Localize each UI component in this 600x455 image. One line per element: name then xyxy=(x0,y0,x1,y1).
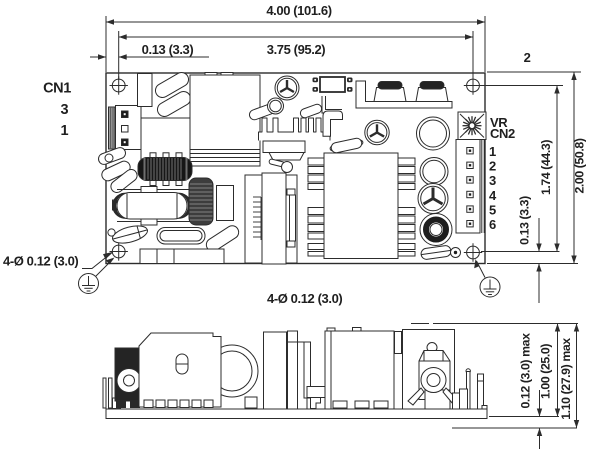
svg-text:2: 2 xyxy=(489,159,496,174)
svg-text:3.75 (95.2): 3.75 (95.2) xyxy=(267,42,326,57)
svg-text:0.13 (3.3): 0.13 (3.3) xyxy=(142,42,194,57)
svg-text:3: 3 xyxy=(489,173,496,188)
svg-text:2.00 (50.8): 2.00 (50.8) xyxy=(573,138,587,193)
svg-text:1: 1 xyxy=(489,144,496,159)
svg-text:1.10 (27.9) max: 1.10 (27.9) max xyxy=(559,338,573,420)
svg-text:6: 6 xyxy=(489,217,496,232)
svg-text:4: 4 xyxy=(489,188,497,203)
svg-text:CN1: CN1 xyxy=(43,81,71,97)
svg-text:3: 3 xyxy=(60,102,68,118)
svg-text:0.13 (3.3): 0.13 (3.3) xyxy=(518,196,532,245)
svg-text:1.00 (25.0): 1.00 (25.0) xyxy=(539,344,553,399)
svg-text:2: 2 xyxy=(524,50,531,65)
svg-text:1: 1 xyxy=(60,123,68,139)
svg-text:0.12 (3.0) max: 0.12 (3.0) max xyxy=(519,333,533,409)
svg-text:CN2: CN2 xyxy=(490,126,515,141)
svg-text:1.74 (44.3): 1.74 (44.3) xyxy=(539,140,553,195)
svg-text:4-Ø 0.12 (3.0): 4-Ø 0.12 (3.0) xyxy=(267,291,342,306)
svg-text:4.00 (101.6): 4.00 (101.6) xyxy=(266,3,331,18)
svg-text:5: 5 xyxy=(489,202,496,217)
svg-text:4-Ø 0.12 (3.0): 4-Ø 0.12 (3.0) xyxy=(3,254,78,269)
